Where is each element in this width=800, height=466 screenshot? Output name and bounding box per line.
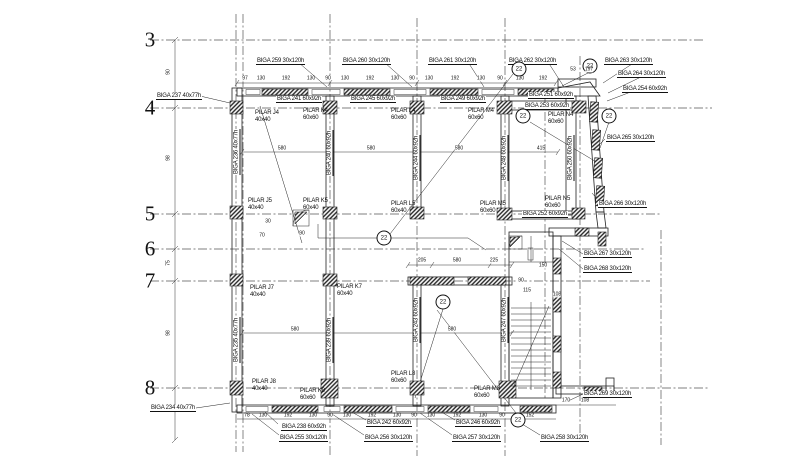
dimension-text: 97 xyxy=(242,77,248,82)
grid-row-number: 4 xyxy=(145,98,156,119)
circle-marker: 22 xyxy=(436,295,451,310)
pillar-label: PILAR J7 40x40 xyxy=(250,285,274,299)
beam-label: BIGA 249 60x92h xyxy=(440,96,486,103)
pillar-label: PILAR J5 40x40 xyxy=(248,198,272,212)
pillar-size: 60x60 xyxy=(545,203,570,210)
beam-label: BIGA 259 30x120h xyxy=(256,58,305,65)
dimension-text: 580 xyxy=(453,259,461,264)
beam-label: BIGA 263 30x120h xyxy=(604,58,653,65)
dimension-text: 580 xyxy=(455,147,463,152)
dimension-text: 205 xyxy=(418,259,426,264)
vertical-beam-label: BIGA 236 40x77h xyxy=(234,129,241,175)
dimension-text: 78 xyxy=(244,414,250,419)
dimension-text: 130 xyxy=(307,77,315,82)
pillar-name: PILAR N5 xyxy=(545,196,570,203)
dimension-text: 130 xyxy=(479,414,487,419)
pillar-label: PILAR J4 40x40 xyxy=(255,110,279,124)
dimension-text: 90 xyxy=(518,279,524,284)
pillar-name: PILAR J4 xyxy=(255,110,279,117)
dimension-text: 192 xyxy=(366,77,374,82)
dimension-text: 130 xyxy=(477,77,485,82)
pillar-label: PILAR L5 60x40 xyxy=(391,201,415,215)
dimension-text: 130 xyxy=(427,414,435,419)
beam-label: BIGA 267 30x120h xyxy=(583,251,632,258)
cad-floor-plan: 345678 BIGA 259 30x120hBIGA 260 30x120hB… xyxy=(0,0,800,466)
pillar-name: PILAR K5 xyxy=(303,198,328,205)
dimension-text: 98 xyxy=(167,155,172,161)
beam-label: BIGA 253 60x92h xyxy=(524,103,570,110)
dimension-text: 108 xyxy=(553,293,561,298)
pillar-label: PILAR M5 60x60 xyxy=(480,201,506,215)
vertical-beam-label: BIGA 235 40x77h xyxy=(234,317,241,363)
dimension-text: 30 xyxy=(265,220,271,225)
pillar-label: PILAR L4 60x60 xyxy=(391,108,415,122)
dimension-text: 98 xyxy=(167,330,172,336)
pillar-label: PILAR M4 60x60 xyxy=(468,108,494,122)
pillar-label: PILAR N4 60x60 xyxy=(548,112,573,126)
pillar-size: 60x60 xyxy=(480,208,506,215)
dimension-text: 192 xyxy=(451,77,459,82)
pillar-name: PILAR L4 xyxy=(391,108,415,115)
pillar-name: PILAR L8 xyxy=(391,371,415,378)
pillar-size: 40x40 xyxy=(248,205,272,212)
pillar-size: 60x60 xyxy=(474,393,500,400)
pillar-size: 60x60 xyxy=(391,378,415,385)
pillar-name: PILAR K4 xyxy=(303,108,328,115)
beam-label: BIGA 265 30x120h xyxy=(606,135,655,142)
dimension-text: 580 xyxy=(291,328,299,333)
dimension-text: 130 xyxy=(425,77,433,82)
dimension-text: 225 xyxy=(490,259,498,264)
beam-label: BIGA 256 30x120h xyxy=(364,435,413,442)
pillar-size: 60x60 xyxy=(303,115,328,122)
circle-marker: 22 xyxy=(511,413,526,428)
dimension-text: 130 xyxy=(257,77,265,82)
beam-label: BIGA 261 30x120h xyxy=(428,58,477,65)
dimension-text: 192 xyxy=(282,77,290,82)
pillar-label: PILAR J8 40x40 xyxy=(252,379,276,393)
pillar-size: 60x40 xyxy=(303,205,328,212)
pillar-name: PILAR M4 xyxy=(468,108,494,115)
beam-label: BIGA 237 40x77h xyxy=(156,93,202,100)
beam-label: BIGA 268 30x120h xyxy=(583,266,632,273)
vertical-beam-label: BIGA 243 60x92h xyxy=(414,297,421,343)
dimension-text: 75 xyxy=(167,260,172,266)
dimension-text: 150 xyxy=(539,264,547,269)
pillar-label: PILAR M8 60x60 xyxy=(474,386,500,400)
pillar-size: 60x60 xyxy=(391,115,415,122)
dimension-text: 192 xyxy=(284,414,292,419)
beam-label: BIGA 258 30x120h xyxy=(540,435,589,442)
dimension-text: 90 xyxy=(411,414,417,419)
vertical-beam-label: BIGA 244 60x92h xyxy=(414,135,421,181)
pillar-size: 60x60 xyxy=(548,119,573,126)
dimension-text: 130 xyxy=(516,77,524,82)
beam-inner-segments xyxy=(246,90,514,412)
dimension-text: 90 xyxy=(167,69,172,75)
vertical-beam-label: BIGA 247 60x92h xyxy=(502,297,509,343)
plan-linework xyxy=(0,0,800,466)
wall-outlines xyxy=(232,79,614,413)
dimension-text: 192 xyxy=(453,414,461,419)
dimension-text: 90 xyxy=(409,77,415,82)
dimension-text: 580 xyxy=(448,328,456,333)
dimension-text: 90 xyxy=(327,414,333,419)
grid-row-number: 7 xyxy=(145,271,156,292)
beam-label: BIGA 254 60x92h xyxy=(622,86,668,93)
beam-label: BIGA 269 30x120h xyxy=(583,391,632,398)
pillar-name: PILAR M8 xyxy=(474,386,500,393)
beam-label: BIGA 260 30x120h xyxy=(342,58,391,65)
beam-label: BIGA 264 30x120h xyxy=(617,71,666,78)
beam-label: BIGA 242 60x92h xyxy=(366,420,412,427)
pillar-size: 60x40 xyxy=(337,291,362,298)
dimension-text: 152 xyxy=(526,414,534,419)
pillar-size: 60x60 xyxy=(300,395,325,402)
dimension-text: 192 xyxy=(368,414,376,419)
beam-label: BIGA 255 30x120h xyxy=(279,435,328,442)
dimension-text: 130 xyxy=(391,77,399,82)
dimension-text: 130 xyxy=(343,414,351,419)
dimension-text: 130 xyxy=(309,414,317,419)
pillar-name: PILAR K8 xyxy=(300,388,325,395)
pillar-size: 40x40 xyxy=(255,117,279,124)
dimension-text: 90 xyxy=(299,232,305,237)
pillar-name: PILAR J8 xyxy=(252,379,276,386)
dimension-text: 90 xyxy=(499,414,505,419)
pillar-size: 40x40 xyxy=(252,386,276,393)
beam-label: BIGA 241 60x92h xyxy=(276,96,322,103)
circle-marker: 22 xyxy=(602,109,617,124)
pillar-label: PILAR L8 60x60 xyxy=(391,371,415,385)
beam-label: BIGA 266 30x120h xyxy=(598,201,647,208)
dimension-text: 415 xyxy=(537,147,545,152)
vertical-beam-label: BIGA 240 60x92h xyxy=(327,130,334,176)
pillar-name: PILAR N4 xyxy=(548,112,573,119)
pillar-label: PILAR K5 60x40 xyxy=(303,198,328,212)
pillar-label: PILAR K4 60x60 xyxy=(303,108,328,122)
beam-label: BIGA 245 60x92h xyxy=(350,96,396,103)
beam-label: BIGA 234 40x77h xyxy=(150,405,196,412)
dimension-text: 580 xyxy=(367,147,375,152)
dimension-text: 90 xyxy=(497,77,503,82)
pillar-name: PILAR L5 xyxy=(391,201,415,208)
dimension-text: 108 xyxy=(581,399,589,404)
vertical-beam-label: BIGA 250 60x92h xyxy=(568,135,575,181)
dimension-text: 170 xyxy=(562,399,570,404)
circle-marker: 22 xyxy=(512,62,527,77)
pillar-size: 60x60 xyxy=(468,115,494,122)
beam-label: BIGA 257 30x120h xyxy=(452,435,501,442)
pillar-name: PILAR J7 xyxy=(250,285,274,292)
grid-row-number: 6 xyxy=(145,239,156,260)
beam-label: BIGA 251 60x92h xyxy=(528,92,574,99)
pillar-name: PILAR K7 xyxy=(337,284,362,291)
grid-row-number: 8 xyxy=(145,378,156,399)
circle-marker: 22 xyxy=(516,109,531,124)
pillar-size: 60x40 xyxy=(391,208,415,215)
vertical-beam-label: BIGA 239 60x92h xyxy=(327,317,334,363)
dimension-text: 90 xyxy=(325,77,331,82)
dimension-text: 197 xyxy=(585,68,593,73)
beam-label: BIGA 246 60x92h xyxy=(455,420,501,427)
beam-label: BIGA 238 60x92h xyxy=(281,424,327,431)
dimension-text: 130 xyxy=(393,414,401,419)
pillar-name: PILAR J5 xyxy=(248,198,272,205)
pillar-name: PILAR M5 xyxy=(480,201,506,208)
dimension-text: 53 xyxy=(570,68,576,73)
staircase xyxy=(509,236,553,390)
dimension-text: 580 xyxy=(278,147,286,152)
pillar-label: PILAR K8 60x60 xyxy=(300,388,325,402)
dimension-text: 130 xyxy=(259,414,267,419)
pillar-size: 40x40 xyxy=(250,292,274,299)
dimension-text: 192 xyxy=(539,77,547,82)
vertical-beam-label: BIGA 248 60x92h xyxy=(502,135,509,181)
dimension-text: 70 xyxy=(259,234,265,239)
beam-label: BIGA 252 60x92h xyxy=(522,211,568,218)
dimension-text: 115 xyxy=(523,289,531,294)
pillar-label: PILAR K7 60x40 xyxy=(337,284,362,298)
circle-marker: 22 xyxy=(377,231,392,246)
pillar-label: PILAR N5 60x60 xyxy=(545,196,570,210)
grid-row-number: 5 xyxy=(145,204,156,225)
dimension-text: 130 xyxy=(341,77,349,82)
grid-row-number: 3 xyxy=(145,30,156,51)
